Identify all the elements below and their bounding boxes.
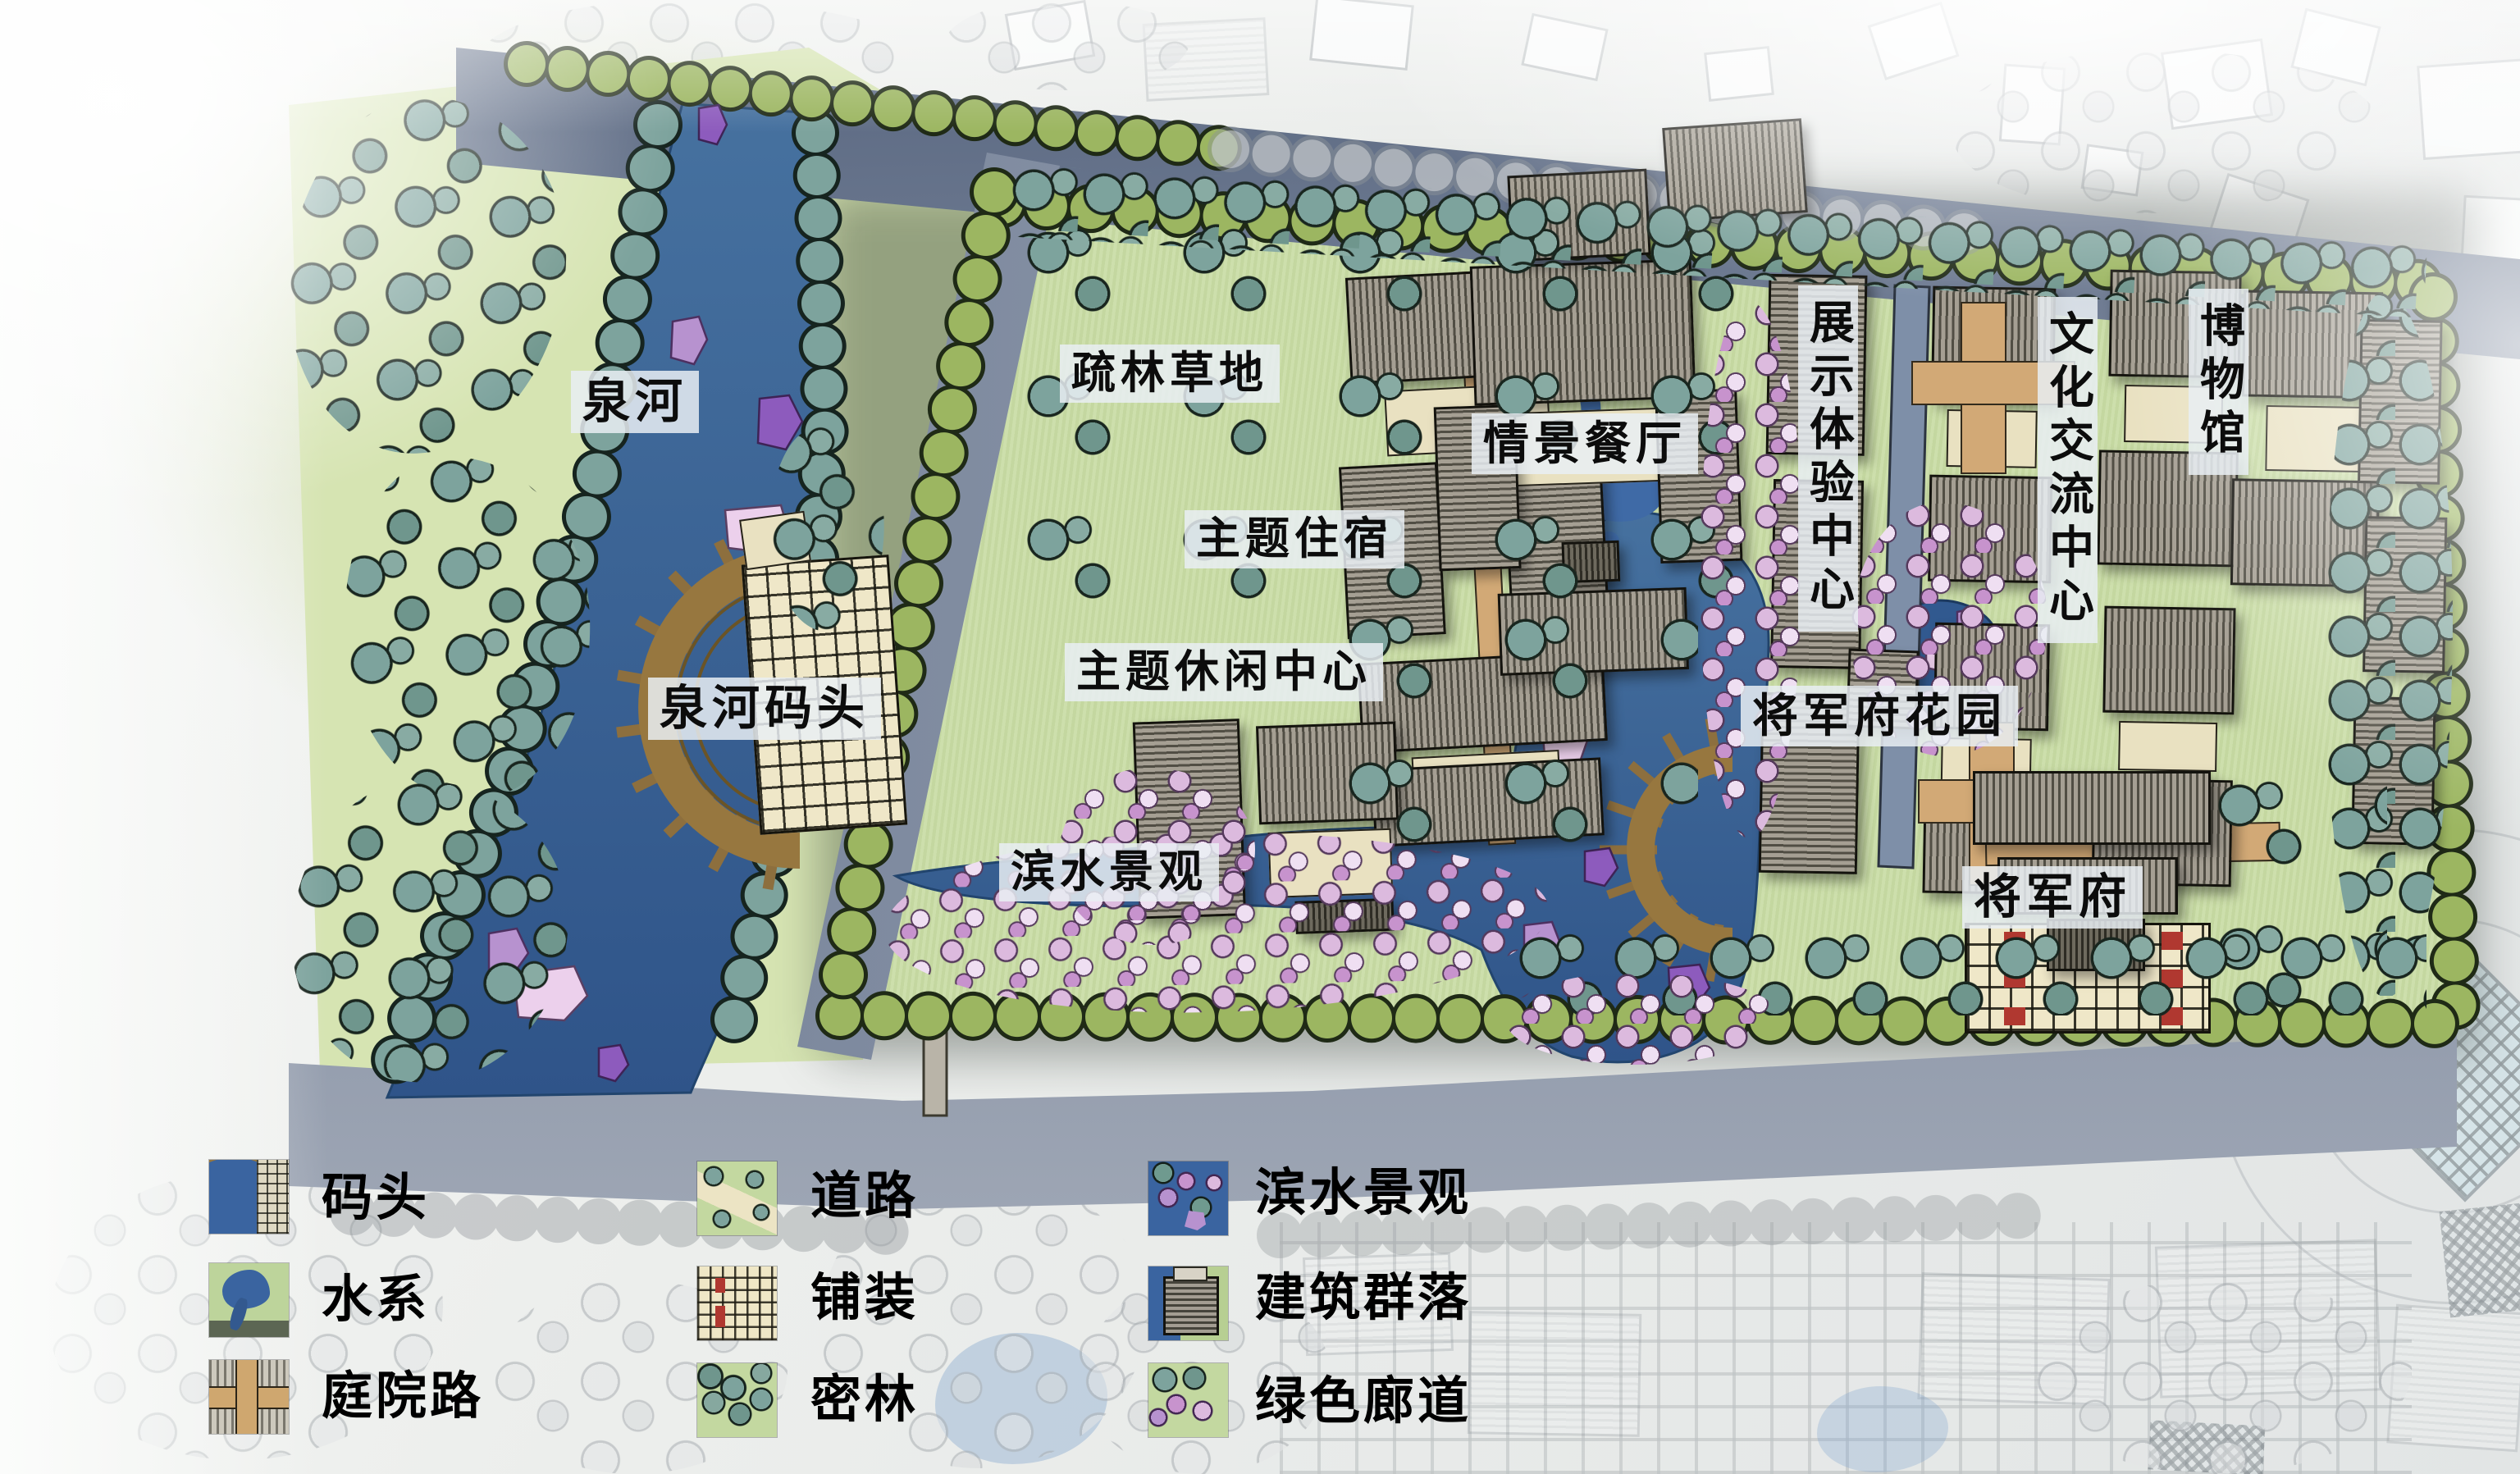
master-plan-canvas: 泉河 泉河码头 疏林草地 主题住宿 情景餐厅 主题休闲中心 滨水景观 展示体验中… [0,0,2520,1474]
legend-swatch-dense-forest [697,1363,777,1437]
label-exhibition-center: 展示体验中心 [1798,285,1858,632]
legend-swatch-water-system [209,1263,289,1337]
label-museum: 博物馆 [2189,289,2248,475]
hall-roof [2102,606,2235,715]
legend-label: 绿色廊道 [1255,1376,1472,1427]
context-building [1868,2,1960,80]
context-trees [1952,49,2379,213]
label-theme-leisure: 主题休闲中心 [1065,643,1383,701]
legend-label: 密林 [810,1375,919,1426]
legend-label: 道路 [810,1171,919,1222]
label-theme-lodging: 主题住宿 [1185,510,1404,568]
label-waterfront: 滨水景观 [999,843,1219,901]
label-sparse-woodland: 疏林草地 [1060,345,1280,403]
label-mansion: 将军府 [1962,866,2143,929]
legend-label: 庭院路 [322,1371,484,1422]
context-weave-patch [2440,1201,2520,1318]
legend-label: 水系 [322,1275,430,1326]
label-river-dock: 泉河码头 [648,678,881,740]
legend-label: 滨水景观 [1255,1168,1472,1219]
legend-swatch-waterfront [1148,1161,1228,1235]
legend-swatch-building-cluster [1148,1266,1228,1340]
legend-swatch-road [697,1161,777,1235]
legend-label: 建筑群落 [1255,1273,1472,1324]
legend-label: 码头 [322,1173,430,1224]
context-building [1309,0,1414,71]
legend-swatch-dock [209,1160,289,1234]
hall-roof [1973,771,2211,845]
context-building [1521,13,1608,81]
legend-swatch-green-corridor [1148,1363,1228,1437]
label-scene-restaurant: 情景餐厅 [1472,413,1698,474]
label-cultural-exchange: 文化交流中心 [2038,297,2098,643]
context-building [2417,57,2520,160]
label-river: 泉河 [571,371,699,433]
legend-label: 铺装 [810,1273,919,1324]
legend-swatch-courtyard-road [209,1360,289,1434]
legend-swatch-paving [697,1266,777,1340]
label-mansion-garden: 将军府花园 [1741,686,2018,746]
context-building [1704,46,1774,102]
